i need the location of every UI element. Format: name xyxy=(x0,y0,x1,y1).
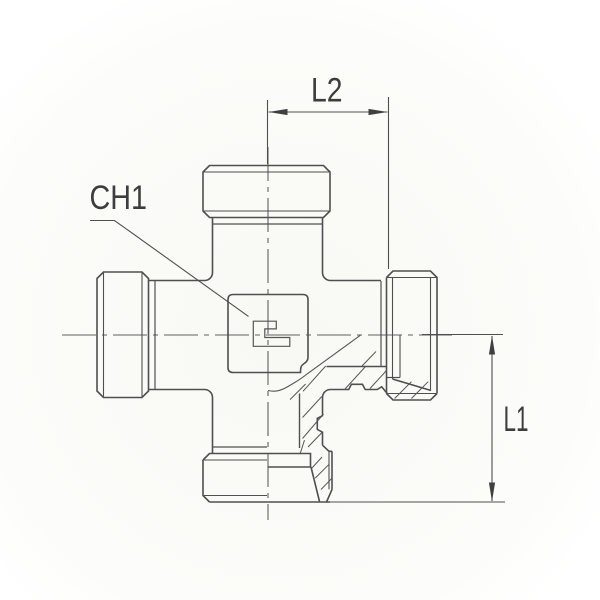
svg-text:L1: L1 xyxy=(504,400,529,439)
svg-text:L2: L2 xyxy=(311,72,343,110)
svg-text:CH1: CH1 xyxy=(90,179,148,217)
